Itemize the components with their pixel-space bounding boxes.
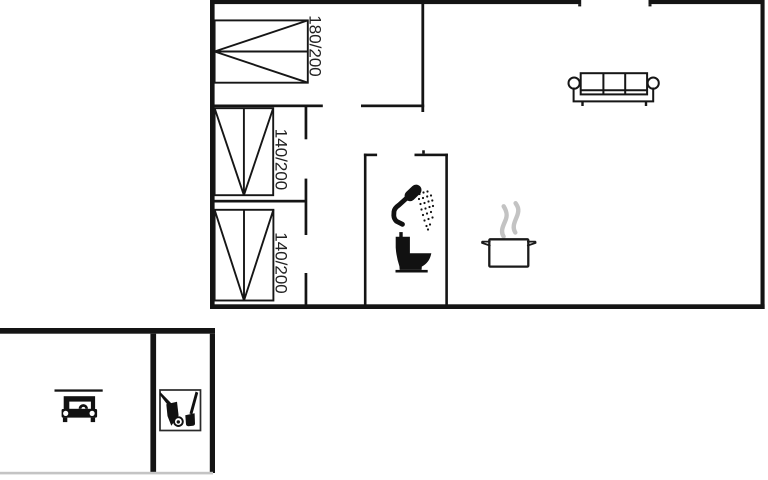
svg-text:140/200: 140/200	[272, 129, 291, 190]
svg-text:180/200: 180/200	[305, 15, 324, 76]
svg-text:140/200: 140/200	[272, 232, 291, 293]
